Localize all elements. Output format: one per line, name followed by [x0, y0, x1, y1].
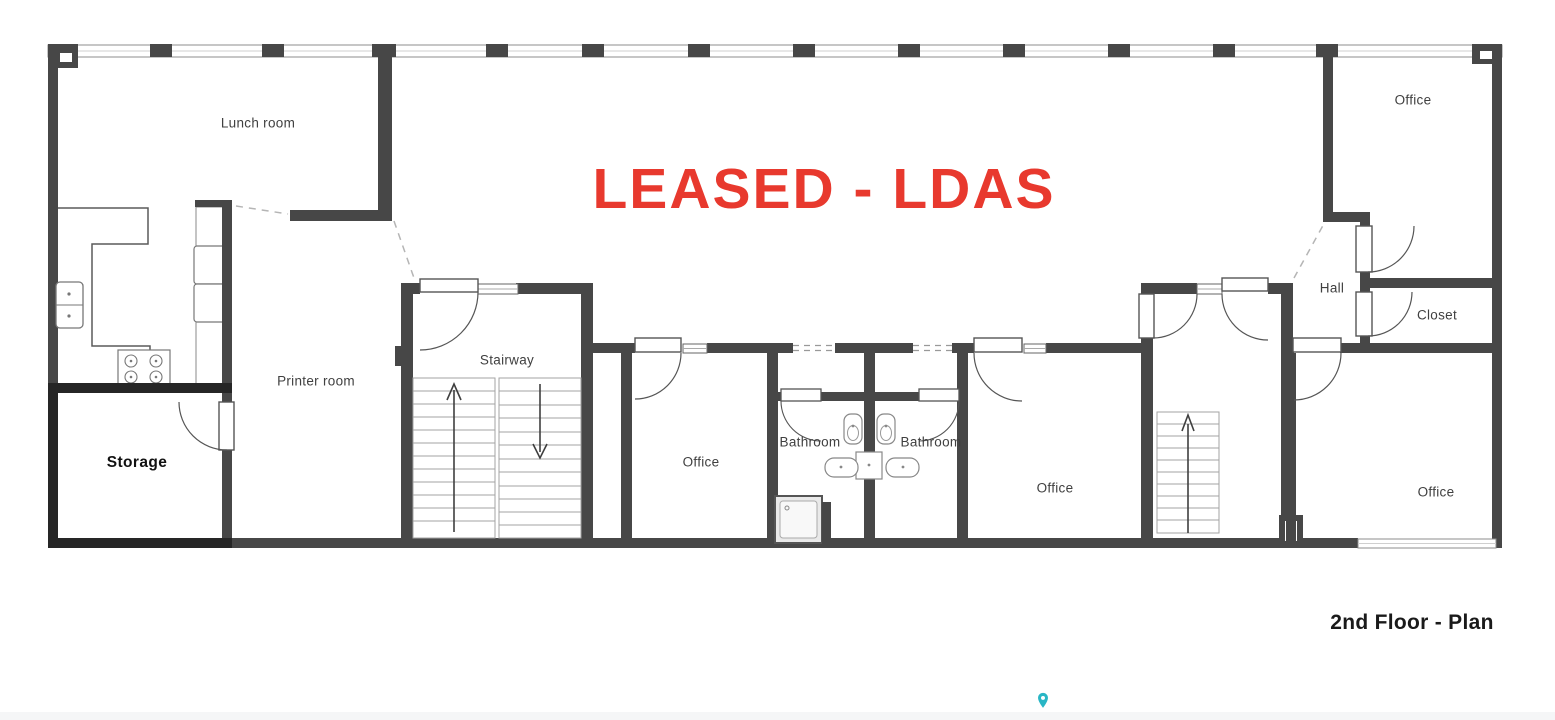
bottom-strip [0, 712, 1555, 720]
toilet-2 [877, 414, 895, 444]
bathroom-2-door-leaf [919, 389, 959, 401]
office-bottom-right-door-leaf [1293, 338, 1341, 352]
lunch-room-walls [236, 57, 414, 278]
hall-opening-dash [1294, 220, 1326, 278]
kitchen-stove [118, 350, 170, 387]
office-top-right-door-arc [1368, 226, 1414, 272]
room-label-bathroom-right: Bathroom [901, 435, 962, 450]
room-label-office-top-right: Office [1395, 93, 1432, 108]
stairway-stairs [413, 378, 581, 538]
room-label-storage: Storage [107, 454, 168, 472]
room-label-bathroom-left: Bathroom [780, 435, 841, 450]
kitchen-sink [56, 282, 83, 328]
right-stairway-top-door-arc [1222, 294, 1268, 340]
office-1-door-arc [635, 353, 681, 399]
office-2-door-arc [974, 353, 1022, 401]
right-stair-arrow [1182, 415, 1194, 533]
right-stairway-top-door-leaf [1222, 278, 1268, 291]
right-section-walls [1286, 57, 1492, 548]
office-bottom-right-door-arc [1294, 353, 1341, 400]
stair-arrows [447, 384, 547, 532]
stairway-door-leaf [420, 279, 478, 292]
shower [775, 496, 831, 548]
office-2-door-leaf [974, 338, 1022, 352]
plan-title: 2nd Floor - Plan [1330, 611, 1493, 635]
office-1-door-leaf [635, 338, 681, 352]
vanity-sinks [825, 452, 919, 479]
leased-banner: LEASED - LDAS [592, 156, 1055, 222]
room-label-office-mid-left: Office [683, 455, 720, 470]
bathroom-1-door-leaf [781, 389, 821, 401]
room-label-printer-room: Printer room [277, 374, 355, 389]
floor-plan-canvas: Lunch room Printer room Storage Stairway… [0, 0, 1555, 720]
room-label-stairway: Stairway [480, 353, 534, 368]
right-stairway-side-door-leaf [1139, 294, 1154, 338]
floor-plan-drawing [0, 0, 1555, 720]
right-stairway-side-door-arc [1153, 294, 1197, 338]
room-label-office-bottom-right: Office [1418, 485, 1455, 500]
office-top-right-door-leaf [1356, 226, 1372, 272]
closet-door-arc [1368, 292, 1412, 336]
corridor-wall [581, 338, 1145, 401]
toilet-1 [844, 414, 862, 444]
room-label-hall: Hall [1320, 281, 1344, 296]
location-pin-icon[interactable] [1036, 692, 1050, 709]
storage-door-leaf [219, 402, 234, 450]
room-label-office-mid-right: Office [1037, 481, 1074, 496]
room-label-lunch-room: Lunch room [221, 116, 295, 131]
room-label-closet: Closet [1417, 308, 1457, 323]
stairway-door-arc [420, 292, 478, 350]
closet-door-leaf [1356, 292, 1372, 336]
